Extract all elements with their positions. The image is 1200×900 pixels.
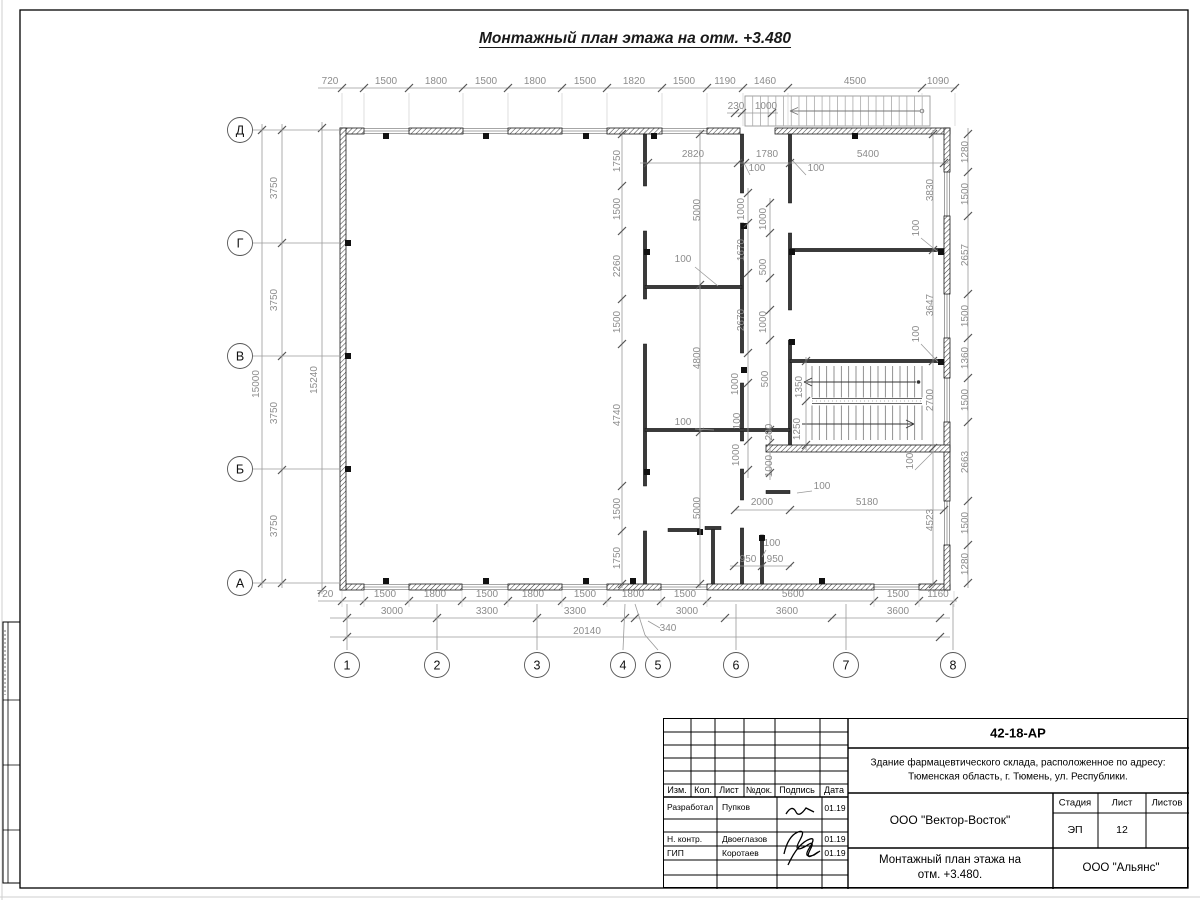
svg-text:1500: 1500 bbox=[673, 76, 696, 87]
svg-text:2700: 2700 bbox=[925, 388, 936, 411]
svg-text:15000: 15000 bbox=[251, 370, 262, 398]
svg-text:100: 100 bbox=[732, 412, 743, 429]
svg-text:1800: 1800 bbox=[622, 589, 645, 600]
svg-text:5: 5 bbox=[655, 659, 662, 673]
svg-text:1000: 1000 bbox=[755, 101, 778, 112]
svg-text:1250: 1250 bbox=[792, 417, 803, 440]
svg-text:Г: Г bbox=[237, 237, 244, 251]
svg-text:2820: 2820 bbox=[682, 149, 705, 160]
svg-text:3: 3 bbox=[534, 659, 541, 673]
svg-text:3600: 3600 bbox=[887, 606, 910, 617]
svg-text:2: 2 bbox=[434, 659, 441, 673]
svg-text:100: 100 bbox=[764, 538, 781, 549]
svg-text:2670: 2670 bbox=[736, 308, 747, 331]
svg-text:5400: 5400 bbox=[857, 149, 880, 160]
svg-text:1000: 1000 bbox=[758, 207, 769, 230]
svg-text:Б: Б bbox=[236, 463, 244, 477]
svg-text:1500: 1500 bbox=[612, 310, 623, 333]
svg-text:8: 8 bbox=[950, 659, 957, 673]
svg-text:1000: 1000 bbox=[731, 443, 742, 466]
drawing-title: Монтажный план этажа на отм. +3.480 bbox=[400, 30, 870, 48]
svg-text:1500: 1500 bbox=[374, 589, 397, 600]
svg-text:1500: 1500 bbox=[476, 589, 499, 600]
sheet-value: 12 bbox=[1116, 824, 1128, 836]
svg-text:1800: 1800 bbox=[424, 589, 447, 600]
svg-text:500: 500 bbox=[760, 370, 771, 387]
svg-text:100: 100 bbox=[749, 163, 766, 174]
drawing-sheet: 7201500180015001800150018201500119014604… bbox=[0, 0, 1200, 900]
svg-text:1360: 1360 bbox=[960, 346, 971, 369]
svg-text:3000: 3000 bbox=[381, 606, 404, 617]
sheets-label: Листов bbox=[1152, 798, 1183, 809]
svg-text:В: В bbox=[236, 350, 244, 364]
interior-walls bbox=[345, 133, 944, 584]
svg-text:720: 720 bbox=[322, 76, 339, 87]
svg-text:3830: 3830 bbox=[925, 178, 936, 201]
svg-text:1500: 1500 bbox=[887, 589, 910, 600]
svg-text:4: 4 bbox=[620, 659, 627, 673]
svg-text:4800: 4800 bbox=[692, 346, 703, 369]
windows bbox=[364, 128, 950, 590]
axis-markers: ДГВБА12345678 bbox=[228, 118, 966, 678]
svg-text:3300: 3300 bbox=[476, 606, 499, 617]
svg-text:950: 950 bbox=[740, 554, 757, 565]
svg-text:1800: 1800 bbox=[524, 76, 547, 87]
svg-text:1500: 1500 bbox=[574, 589, 597, 600]
object-line2: Тюменская область, г. Тюмень, ул. Респуб… bbox=[908, 772, 1128, 783]
svg-text:4500: 4500 bbox=[844, 76, 867, 87]
svg-text:1500: 1500 bbox=[612, 497, 623, 520]
svg-text:А: А bbox=[236, 577, 245, 591]
svg-text:3000: 3000 bbox=[676, 606, 699, 617]
svg-text:1350: 1350 bbox=[794, 375, 805, 398]
svg-text:2260: 2260 bbox=[612, 254, 623, 277]
svg-text:1500: 1500 bbox=[960, 304, 971, 327]
svg-text:6: 6 bbox=[733, 659, 740, 673]
svg-text:3750: 3750 bbox=[269, 401, 280, 424]
svg-text:3750: 3750 bbox=[269, 176, 280, 199]
svg-text:15240: 15240 bbox=[309, 366, 320, 394]
svg-text:340: 340 bbox=[660, 623, 677, 634]
svg-text:5600: 5600 bbox=[782, 589, 805, 600]
svg-text:100: 100 bbox=[814, 481, 831, 492]
svg-text:1: 1 bbox=[344, 659, 351, 673]
svg-text:2657: 2657 bbox=[960, 243, 971, 266]
svg-text:1820: 1820 bbox=[623, 76, 646, 87]
drawing-name-line1: Монтажный план этажа на bbox=[879, 854, 1021, 866]
stage-value: ЭП bbox=[1067, 824, 1082, 836]
svg-text:100: 100 bbox=[911, 219, 922, 236]
svg-text:2663: 2663 bbox=[960, 450, 971, 473]
drawing-name-line2: отм. +3.480. bbox=[918, 869, 982, 881]
svg-text:1500: 1500 bbox=[612, 197, 623, 220]
signature-icon bbox=[786, 808, 814, 814]
svg-text:1500: 1500 bbox=[960, 388, 971, 411]
svg-text:Д: Д bbox=[236, 124, 245, 138]
svg-text:1670: 1670 bbox=[736, 238, 747, 261]
sheet-label: Лист bbox=[1112, 798, 1133, 809]
svg-text:3647: 3647 bbox=[925, 293, 936, 316]
svg-text:1500: 1500 bbox=[375, 76, 398, 87]
svg-text:1500: 1500 bbox=[475, 76, 498, 87]
company-name: ООО "Альянс" bbox=[1083, 862, 1160, 874]
title-block: Изм. Кол. Лист №док. Подпись Дата Разраб… bbox=[663, 718, 1188, 888]
svg-text:1090: 1090 bbox=[927, 76, 950, 87]
svg-text:1800: 1800 bbox=[522, 589, 545, 600]
svg-text:1500: 1500 bbox=[574, 76, 597, 87]
svg-text:500: 500 bbox=[758, 258, 769, 275]
org-name: ООО "Вектор-Восток" bbox=[890, 813, 1011, 827]
svg-text:1280: 1280 bbox=[960, 140, 971, 163]
svg-text:230: 230 bbox=[728, 101, 745, 112]
svg-text:1000: 1000 bbox=[764, 454, 775, 477]
svg-text:5180: 5180 bbox=[856, 497, 879, 508]
svg-text:5000: 5000 bbox=[692, 198, 703, 221]
svg-text:4523: 4523 bbox=[925, 508, 936, 531]
svg-text:1780: 1780 bbox=[756, 149, 779, 160]
dimension-labels: 7201500180015001800150018201500119014604… bbox=[251, 76, 971, 637]
svg-text:4740: 4740 bbox=[612, 403, 623, 426]
svg-text:1280: 1280 bbox=[960, 552, 971, 575]
document-code: 42-18-АР bbox=[990, 726, 1046, 741]
svg-text:1750: 1750 bbox=[612, 149, 623, 172]
svg-text:1500: 1500 bbox=[674, 589, 697, 600]
svg-text:1000: 1000 bbox=[730, 372, 741, 395]
svg-text:1160: 1160 bbox=[927, 589, 949, 600]
svg-text:5000: 5000 bbox=[692, 496, 703, 519]
svg-text:1000: 1000 bbox=[736, 197, 747, 220]
svg-text:20140: 20140 bbox=[573, 626, 601, 637]
svg-text:1500: 1500 bbox=[960, 182, 971, 205]
svg-text:200: 200 bbox=[764, 423, 775, 440]
svg-text:2000: 2000 bbox=[751, 497, 774, 508]
svg-text:1460: 1460 bbox=[754, 76, 777, 87]
svg-text:100: 100 bbox=[675, 254, 692, 265]
svg-text:1000: 1000 bbox=[758, 310, 769, 333]
signature-icon bbox=[784, 831, 820, 865]
svg-text:100: 100 bbox=[808, 163, 825, 174]
stage-label: Стадия bbox=[1059, 798, 1091, 809]
svg-text:7: 7 bbox=[843, 659, 850, 673]
svg-text:1800: 1800 bbox=[425, 76, 448, 87]
svg-text:3600: 3600 bbox=[776, 606, 799, 617]
object-line1: Здание фармацевтического склада, располо… bbox=[870, 758, 1165, 769]
svg-text:950: 950 bbox=[767, 554, 784, 565]
svg-text:1190: 1190 bbox=[714, 76, 736, 87]
internal-stair bbox=[802, 366, 922, 440]
svg-text:100: 100 bbox=[911, 325, 922, 342]
svg-text:720: 720 bbox=[317, 589, 334, 600]
svg-text:100: 100 bbox=[675, 417, 692, 428]
svg-text:100: 100 bbox=[905, 452, 916, 469]
svg-text:3750: 3750 bbox=[269, 288, 280, 311]
svg-text:1750: 1750 bbox=[612, 546, 623, 569]
svg-text:3300: 3300 bbox=[564, 606, 587, 617]
svg-text:3750: 3750 bbox=[269, 514, 280, 537]
svg-text:1500: 1500 bbox=[960, 511, 971, 534]
